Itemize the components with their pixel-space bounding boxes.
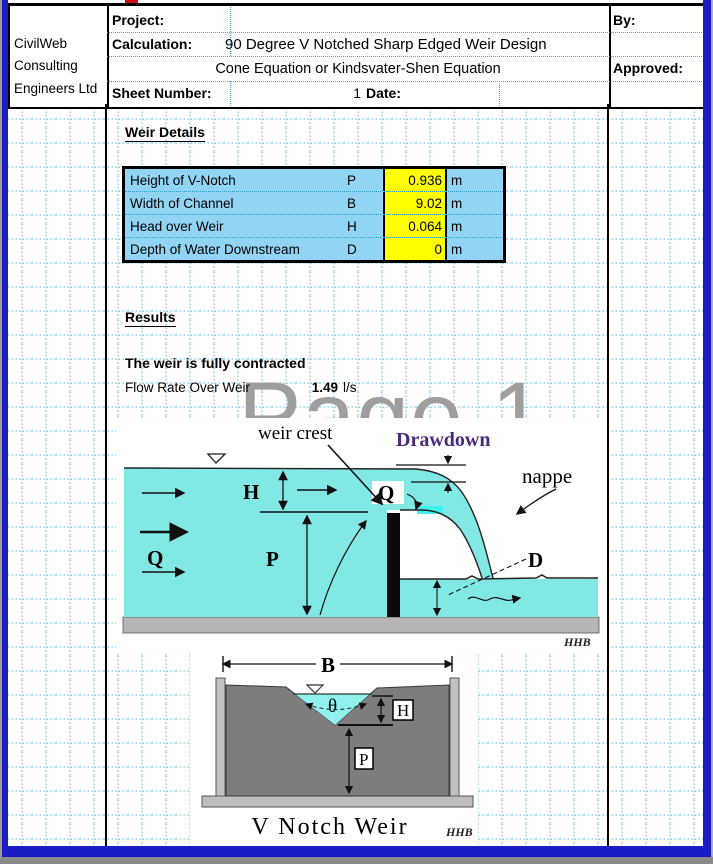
p-dimension-label: P — [359, 750, 368, 769]
project-label: Project: — [112, 12, 164, 28]
results-title: Results — [125, 309, 176, 327]
project-value-cell[interactable] — [232, 8, 607, 31]
company-line: Consulting — [14, 55, 106, 77]
flow-rate-label: Flow Rate Over Weir — [125, 380, 250, 395]
artist-signature: HHB — [445, 825, 473, 839]
row-unit: m — [447, 219, 503, 234]
table-row: Width of Channel B 9.02 m — [125, 192, 503, 215]
flow-rate-value: 1.49 — [250, 380, 338, 395]
calculation-value: 90 Degree V Notched Sharp Edged Weir Des… — [225, 36, 545, 53]
flow-rate-unit: l/s — [343, 380, 357, 395]
weir-section-figure: H P Q Q weir crest Drawdown nap — [116, 418, 608, 652]
side-post-left — [216, 678, 225, 796]
date-label: Date: — [366, 85, 401, 101]
table-row: Height of V-Notch P 0.936 m — [125, 169, 503, 192]
window-edge-bottom — [0, 857, 713, 864]
input-cell-height-of-v-notch[interactable]: 0.936 — [383, 169, 447, 191]
row-symbol: B — [347, 196, 383, 211]
header-date-sep — [499, 81, 500, 106]
input-cell-width-of-channel[interactable]: 9.02 — [383, 192, 447, 214]
weir-plate — [387, 513, 400, 617]
row-symbol: P — [347, 173, 383, 188]
drawdown-label: Drawdown — [396, 429, 490, 451]
window-border-left — [2, 0, 8, 857]
water-surface-marker-icon — [208, 454, 225, 463]
weir-section-drawing: H P Q Q weir crest Drawdown nap — [116, 418, 608, 652]
h-dimension-label: H — [397, 701, 409, 720]
header-row-sep-2 — [107, 56, 706, 57]
p-dimension-label: P — [266, 547, 279, 571]
b-dimension-label: B — [321, 653, 335, 677]
row-label: Width of Channel — [125, 196, 347, 211]
company-line: Engineers Ltd — [14, 78, 106, 100]
cropped-title-fragment — [125, 0, 138, 3]
by-label: By: — [613, 12, 636, 28]
d-depth-label: D — [528, 548, 543, 572]
calculation-label: Calculation: — [112, 36, 192, 52]
theta-angle-label: θ — [328, 696, 337, 717]
date-value-cell[interactable] — [410, 83, 498, 105]
h-dimension-label: H — [243, 480, 259, 504]
weir-details-title: Weir Details — [125, 124, 205, 142]
window-border-right — [703, 0, 711, 857]
approved-value-cell[interactable] — [611, 83, 704, 105]
contraction-status: The weir is fully contracted — [125, 355, 306, 371]
sheet-number-value[interactable]: 1 — [225, 85, 361, 101]
window-border-bottom — [2, 846, 711, 857]
table-row: Depth of Water Downstream D 0 m — [125, 238, 503, 260]
header-block: CivilWeb Consulting Engineers Ltd Projec… — [8, 3, 708, 109]
downstream-surface-line — [400, 575, 598, 579]
row-symbol: H — [347, 219, 383, 234]
weir-crest-label: weir crest — [258, 423, 333, 444]
header-row-sep-3 — [107, 81, 706, 82]
water-surface-marker-icon — [307, 685, 323, 693]
print-area-left-line — [105, 104, 107, 847]
window-edge-left — [0, 0, 2, 857]
row-label: Head over Weir — [125, 219, 347, 234]
sheet-number-label: Sheet Number: — [112, 85, 212, 101]
figure-caption: V Notch Weir — [251, 814, 408, 840]
row-label: Height of V-Notch — [125, 173, 347, 188]
company-line: CivilWeb — [14, 33, 106, 55]
approved-label: Approved: — [613, 60, 683, 76]
row-symbol: D — [347, 242, 383, 257]
spreadsheet-page: Page 1 CivilWeb Consulting Engineers Ltd… — [0, 0, 713, 864]
row-unit: m — [447, 196, 503, 211]
method-line: Cone Equation or Kindsvater-Shen Equatio… — [107, 61, 609, 77]
row-label: Depth of Water Downstream — [125, 242, 347, 257]
q-upstream-label: Q — [147, 546, 163, 570]
channel-floor — [123, 617, 599, 633]
print-area-right-line — [607, 104, 609, 847]
row-unit: m — [447, 242, 503, 257]
v-notch-drawing: θ B H P V Notch Weir HHB — [190, 644, 478, 846]
input-cell-head-over-weir[interactable]: 0.064 — [383, 215, 447, 237]
table-row: Head over Weir H 0.064 m — [125, 215, 503, 238]
nappe-label: nappe — [522, 464, 572, 488]
base-slab — [202, 796, 473, 807]
side-post-right — [450, 678, 459, 796]
weir-details-table: Height of V-Notch P 0.936 m Width of Cha… — [122, 166, 506, 263]
nappe-arrow — [517, 489, 556, 514]
row-unit: m — [447, 173, 503, 188]
v-notch-figure: θ B H P V Notch Weir HHB — [190, 644, 478, 846]
artist-signature: HHB — [563, 635, 591, 649]
company-name: CivilWeb Consulting Engineers Ltd — [14, 33, 106, 100]
by-value-cell[interactable] — [611, 33, 704, 55]
input-cell-depth-downstream[interactable]: 0 — [383, 238, 447, 260]
